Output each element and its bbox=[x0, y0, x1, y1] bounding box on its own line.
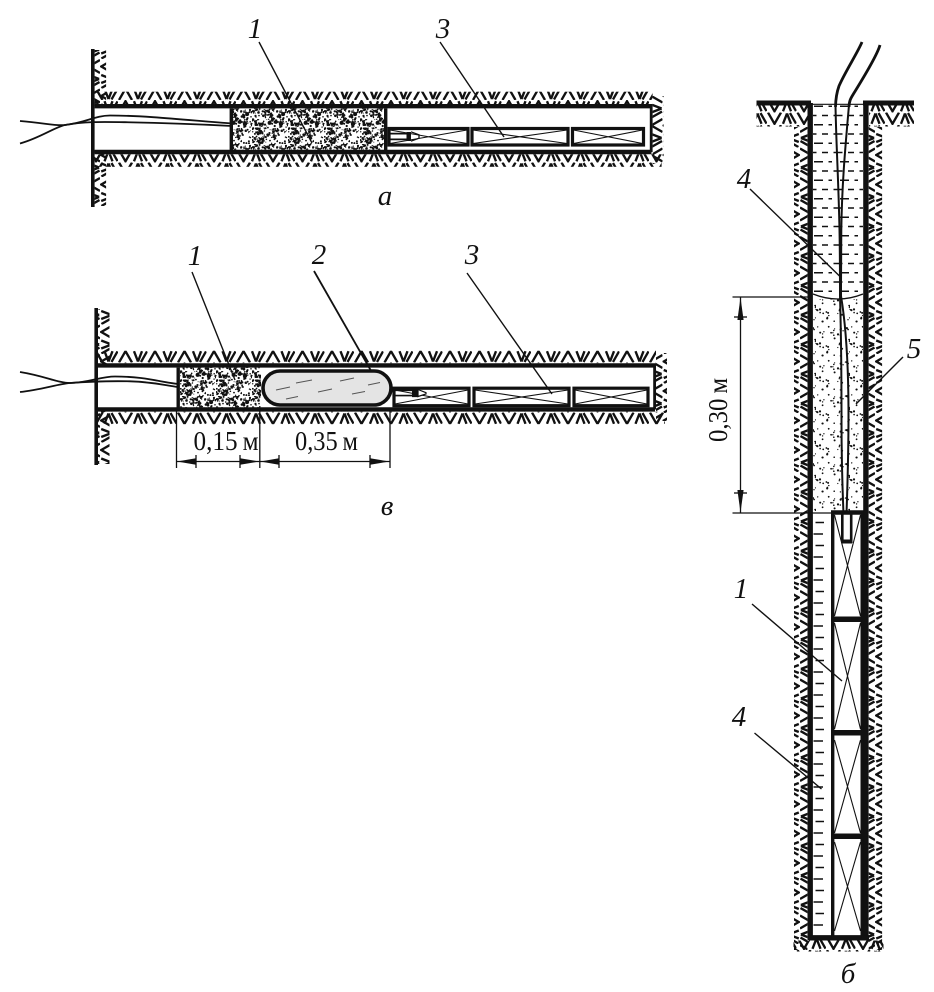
svg-text:4: 4 bbox=[732, 701, 747, 733]
svg-text:4: 4 bbox=[737, 163, 752, 195]
svg-text:0,35 м: 0,35 м bbox=[295, 426, 358, 456]
svg-text:б: б bbox=[841, 958, 857, 990]
svg-text:а: а bbox=[378, 180, 393, 212]
svg-text:0,15 м: 0,15 м bbox=[194, 426, 259, 456]
svg-text:0,30 м: 0,30 м bbox=[703, 378, 733, 442]
svg-text:3: 3 bbox=[464, 239, 480, 271]
svg-text:1: 1 bbox=[248, 13, 263, 45]
svg-text:в: в bbox=[381, 490, 394, 522]
svg-text:5: 5 bbox=[907, 333, 922, 365]
svg-text:1: 1 bbox=[734, 573, 749, 605]
svg-text:1: 1 bbox=[188, 240, 203, 272]
svg-text:2: 2 bbox=[312, 239, 327, 271]
svg-text:3: 3 bbox=[435, 13, 451, 45]
